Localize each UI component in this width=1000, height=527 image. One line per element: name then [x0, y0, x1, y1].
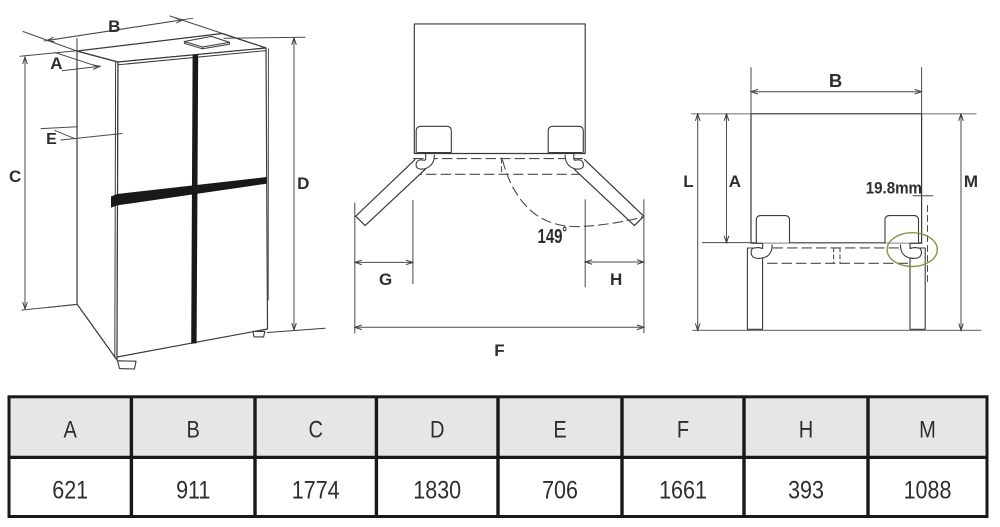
svg-text:D: D [297, 174, 309, 193]
svg-text:149˚: 149˚ [537, 225, 567, 248]
svg-text:1088: 1088 [904, 476, 952, 504]
svg-text:M: M [919, 416, 936, 443]
svg-text:G: G [379, 270, 392, 289]
svg-text:H: H [799, 416, 813, 443]
svg-text:1774: 1774 [292, 476, 340, 504]
svg-text:B: B [187, 416, 200, 443]
svg-text:19.8mm: 19.8mm [866, 179, 922, 198]
svg-text:A: A [729, 172, 741, 191]
svg-text:H: H [610, 270, 622, 289]
svg-text:706: 706 [542, 476, 578, 504]
svg-text:F: F [494, 341, 504, 360]
svg-text:F: F [677, 416, 689, 443]
svg-text:621: 621 [52, 476, 88, 504]
svg-text:393: 393 [788, 476, 824, 504]
svg-text:E: E [553, 416, 566, 443]
svg-text:1661: 1661 [659, 476, 707, 504]
svg-text:L: L [683, 172, 693, 191]
svg-text:C: C [9, 167, 21, 186]
svg-text:911: 911 [176, 476, 210, 504]
svg-text:A: A [50, 54, 62, 73]
svg-text:1830: 1830 [413, 476, 461, 504]
svg-text:D: D [430, 416, 444, 443]
svg-text:C: C [308, 416, 322, 443]
svg-text:B: B [108, 17, 120, 36]
svg-text:B: B [829, 70, 842, 91]
svg-text:A: A [64, 416, 78, 443]
svg-text:M: M [964, 172, 978, 191]
svg-text:E: E [46, 131, 57, 148]
